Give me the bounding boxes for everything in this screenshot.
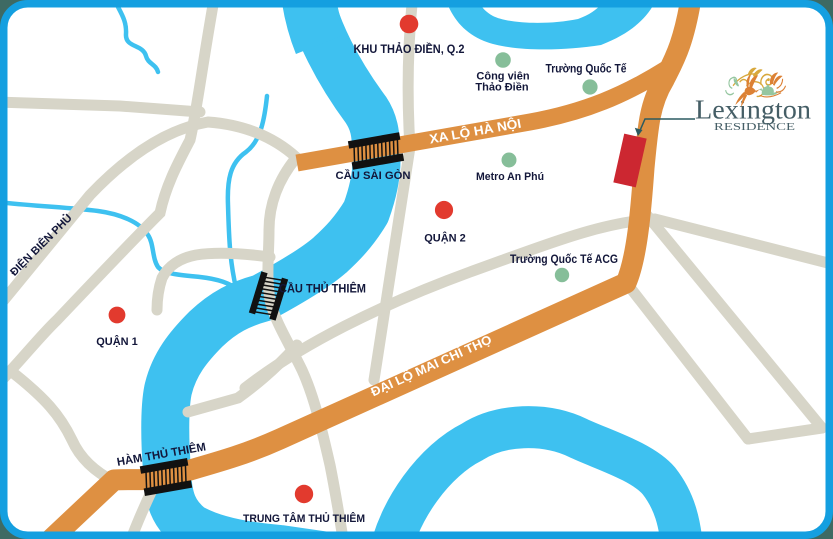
svg-text:QUẬN 1: QUẬN 1 xyxy=(96,335,138,348)
svg-text:Trường Quốc Tế ACG: Trường Quốc Tế ACG xyxy=(510,254,618,266)
svg-text:CẦU SÀI GÒN: CẦU SÀI GÒN xyxy=(336,169,411,182)
svg-text:TRUNG TÂM THỦ THIÊM: TRUNG TÂM THỦ THIÊM xyxy=(243,512,365,525)
svg-text:CẦU THỦ THIÊM: CẦU THỦ THIÊM xyxy=(279,283,366,296)
svg-text:KHU THẢO ĐIỀN, Q.2: KHU THẢO ĐIỀN, Q.2 xyxy=(354,43,465,56)
svg-text:RESIDENCE: RESIDENCE xyxy=(714,122,795,133)
svg-text:Metro An Phú: Metro An Phú xyxy=(476,171,544,183)
svg-text:Lexington: Lexington xyxy=(695,94,811,125)
svg-text:QUẬN 2: QUẬN 2 xyxy=(424,232,466,245)
svg-text:Trường Quốc Tế: Trường Quốc Tế xyxy=(546,64,628,76)
svg-text:Thảo Điền: Thảo Điền xyxy=(475,82,528,94)
